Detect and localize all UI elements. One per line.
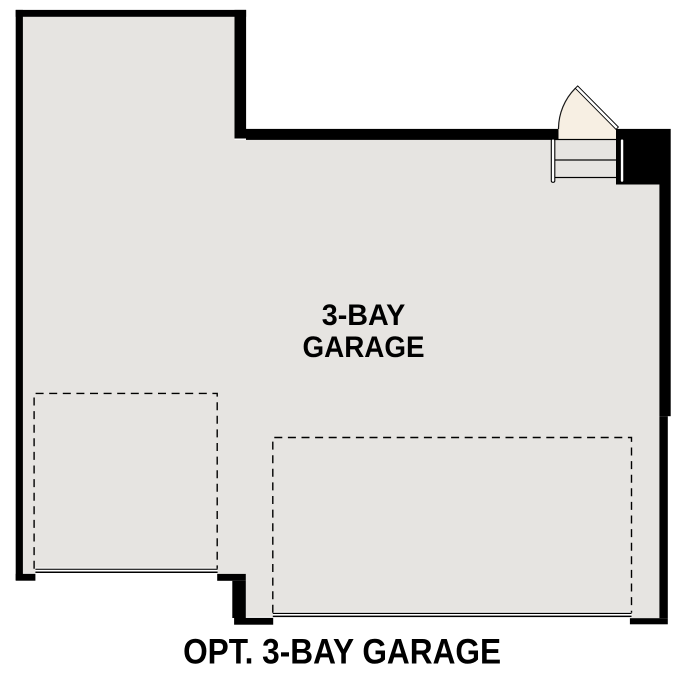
svg-text:OPT. 3-BAY GARAGE: OPT. 3-BAY GARAGE <box>183 632 501 672</box>
svg-text:GARAGE: GARAGE <box>303 331 425 364</box>
svg-text:3-BAY: 3-BAY <box>322 299 406 332</box>
